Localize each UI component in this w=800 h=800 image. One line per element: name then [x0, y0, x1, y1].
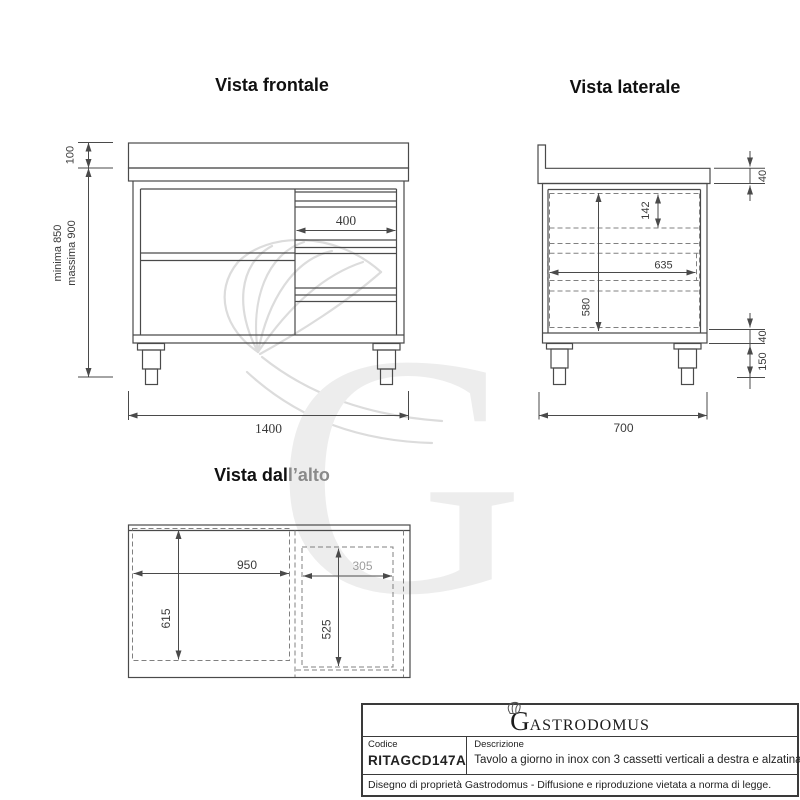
- front-backsplash-and-worktop: [129, 143, 409, 181]
- dim-side-leg-height: 150: [757, 352, 769, 370]
- side-worktop-alzatina-profile: [538, 145, 710, 184]
- gastrodomus-logo: GASTRODOMUS: [510, 710, 650, 735]
- top-view-title-black: Vista dal: [214, 465, 288, 485]
- codice-label: Codice: [368, 739, 466, 750]
- title-block-footer: Disegno di proprietà Gastrodomus - Diffu…: [363, 775, 797, 791]
- dim-front-backsplash-height: 100: [65, 146, 77, 164]
- side-cabinet-body: [543, 184, 708, 344]
- logo-rest: ASTRODOMUS: [530, 717, 650, 734]
- dim-top-drawer-width: 305: [352, 559, 372, 573]
- codice-value: RITAGCD147A: [368, 753, 466, 768]
- dim-front-height-min: minima 850: [52, 225, 64, 282]
- title-block: GASTRODOMUS Codice RITAGCD147A Descrizio…: [361, 703, 799, 797]
- dim-side-inner-depth: 635: [654, 260, 672, 272]
- dim-side-drawer-height: 142: [640, 201, 652, 219]
- side-interior-dashed-lines: [548, 194, 700, 328]
- dim-front-drawer-width: 400: [336, 213, 357, 228]
- side-view-title: Vista laterale: [570, 77, 681, 98]
- dim-front-height-max: massima 900: [66, 220, 78, 285]
- front-view-title: Vista frontale: [215, 75, 329, 96]
- top-view-title-gray: l’alto: [288, 465, 330, 485]
- title-block-logo-row: GASTRODOMUS: [363, 705, 797, 737]
- descrizione-cell: Descrizione Tavolo a giorno in inox con …: [467, 737, 800, 774]
- title-block-middle-row: Codice RITAGCD147A Descrizione Tavolo a …: [363, 737, 797, 775]
- side-view-drawing: 40 142 635 580 40 150 700: [538, 145, 769, 435]
- technical-drawing-page: G: [0, 0, 800, 800]
- watermark: G: [225, 240, 525, 666]
- dim-side-total-depth: 700: [613, 421, 633, 435]
- dim-side-base-thickness: 40: [757, 330, 769, 342]
- dim-side-top-thickness: 40: [757, 170, 769, 182]
- side-legs: [547, 344, 702, 385]
- chef-hat-icon: [506, 701, 524, 715]
- dim-side-body-height: 580: [581, 298, 593, 316]
- dim-top-drawer-depth: 525: [320, 619, 334, 639]
- top-view-title: Vista dall’alto: [214, 465, 330, 486]
- dim-top-open-width: 950: [237, 558, 257, 572]
- side-dimension-lines: [539, 151, 765, 420]
- descrizione-label: Descrizione: [474, 739, 800, 750]
- dim-front-total-width: 1400: [255, 421, 282, 436]
- drawing-layer: G: [0, 0, 800, 800]
- dim-top-open-depth: 615: [159, 608, 173, 628]
- descrizione-value: Tavolo a giorno in inox con 3 cassetti v…: [474, 754, 800, 766]
- codice-cell: Codice RITAGCD147A: [363, 737, 467, 774]
